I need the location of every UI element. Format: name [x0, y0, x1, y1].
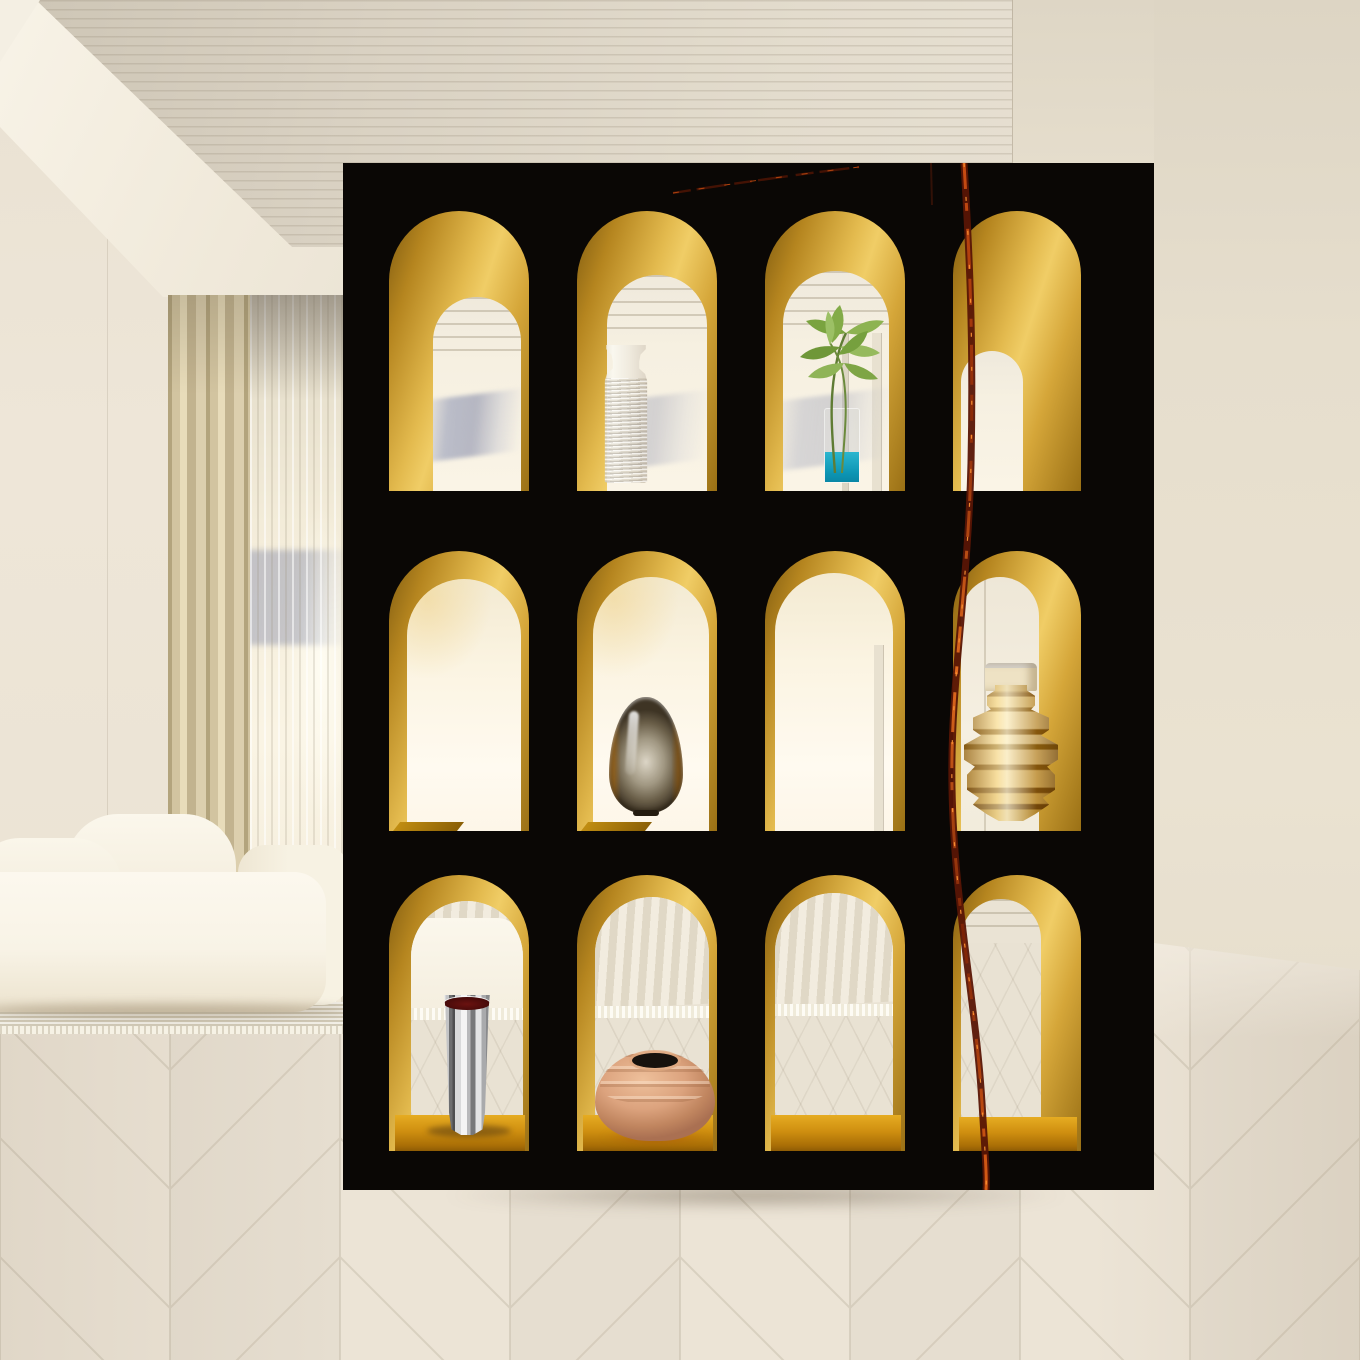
- wall-corner: [1012, 0, 1013, 164]
- sofa: [0, 800, 348, 1015]
- sheer-top-shadow: [250, 295, 343, 400]
- niche-r1c1: [389, 211, 529, 491]
- niche-opening: [433, 297, 521, 491]
- sofa-seat: [0, 872, 326, 1012]
- niche-r1c4: [953, 211, 1081, 491]
- shelf-edge: [581, 822, 652, 831]
- terracotta-pot: [595, 1051, 715, 1141]
- gold-shelf: [771, 1115, 901, 1151]
- view-rug-stripes: [775, 893, 893, 1008]
- niche-r2c3: [765, 551, 905, 831]
- view-rug-fringe: [595, 1006, 709, 1018]
- right-wall: [1154, 0, 1360, 975]
- view-wave-band: [433, 387, 521, 462]
- view-floor: [961, 943, 1041, 1117]
- back-wall-strip: [1012, 0, 1154, 164]
- plant-foliage: [780, 303, 892, 483]
- gold-shelf: [959, 1117, 1077, 1151]
- niche-r2c1: [389, 551, 529, 831]
- view-rug-stripes: [595, 897, 709, 1010]
- view-ceiling-slats: [607, 275, 707, 335]
- vase-mouth: [444, 997, 490, 1010]
- niche-opening: [407, 579, 521, 831]
- niche-opening: [961, 899, 1041, 1117]
- view-ceiling-slats: [961, 899, 1041, 938]
- niche-r3c3: [765, 875, 905, 1151]
- display-unit: [343, 163, 1154, 1190]
- window-frame-line: [874, 645, 883, 831]
- niche-opening: [775, 893, 893, 1115]
- brass-tiered-vase: [961, 663, 1061, 821]
- glass-highlight: [625, 711, 639, 775]
- vase-foot: [633, 810, 660, 816]
- plant-in-glass-vase: [780, 303, 892, 483]
- niche-opening: [961, 351, 1023, 491]
- niche-glow: [407, 579, 521, 831]
- interior-render: [0, 0, 1360, 1360]
- view-ceiling-slats: [433, 297, 521, 351]
- view-rug-fringe: [775, 1004, 893, 1016]
- pot-mouth: [632, 1053, 678, 1068]
- niche-opening: [775, 573, 893, 831]
- shelf-edge: [393, 822, 464, 831]
- view-floor: [775, 1016, 893, 1115]
- vase-body: [961, 685, 1061, 821]
- niche-r3c4: [953, 875, 1081, 1151]
